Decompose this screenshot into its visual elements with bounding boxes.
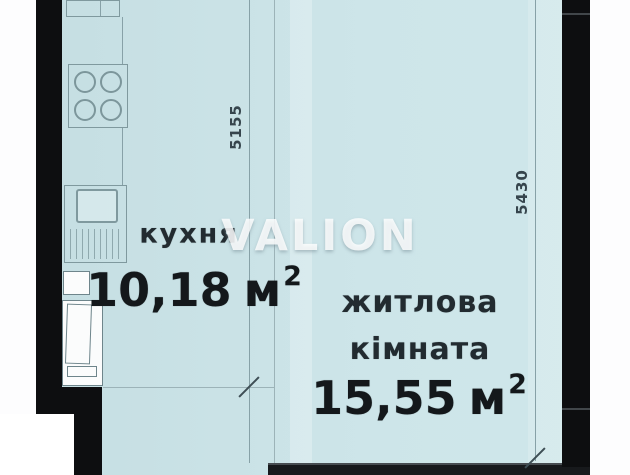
sink-icon bbox=[76, 189, 118, 223]
floor-plan: 5155 5430 кухня 10,18м2 житлова кімната … bbox=[0, 0, 630, 475]
kitchen-area-label: 10,18м2 bbox=[86, 263, 302, 317]
wall-joint-line bbox=[562, 13, 590, 15]
plan-outside-notch bbox=[0, 414, 74, 475]
dimension-label-living: 5430 bbox=[513, 169, 531, 215]
wall-left bbox=[36, 0, 62, 414]
living-room-name-label: житлова кімната bbox=[341, 279, 498, 373]
kitchen-area-unit: м bbox=[244, 263, 282, 317]
counter-edge-line bbox=[122, 128, 123, 185]
living-room-name-line2: кімната bbox=[341, 326, 498, 373]
living-room-area-sup: 2 bbox=[508, 369, 527, 400]
wall-step bbox=[36, 387, 102, 414]
wall-bottom bbox=[268, 463, 590, 475]
counter-edge-line bbox=[122, 17, 123, 64]
burner-icon bbox=[100, 99, 122, 121]
living-room-name-line1: житлова bbox=[341, 279, 498, 326]
kitchen-area-sup: 2 bbox=[283, 261, 302, 292]
living-room-area-label: 15,55м2 bbox=[311, 371, 527, 425]
cabinet-icon bbox=[66, 0, 120, 17]
dish-drainer-icon bbox=[70, 229, 124, 259]
living-room-area-unit: м bbox=[469, 371, 507, 425]
burner-icon bbox=[74, 71, 96, 93]
wall-right bbox=[562, 0, 590, 467]
burner-icon bbox=[100, 71, 122, 93]
dimension-line-vertical-living bbox=[535, 0, 536, 461]
wall-column bbox=[74, 414, 102, 475]
wall-joint-line bbox=[562, 408, 590, 410]
living-room-area-value: 15,55 bbox=[311, 371, 457, 425]
floor-shade-band bbox=[528, 0, 562, 463]
burner-icon bbox=[74, 99, 96, 121]
kitchen-area-value: 10,18 bbox=[86, 263, 232, 317]
dimension-label-kitchen: 5155 bbox=[227, 104, 245, 150]
watermark-text: VALION bbox=[221, 211, 419, 261]
door-threshold bbox=[67, 366, 97, 377]
